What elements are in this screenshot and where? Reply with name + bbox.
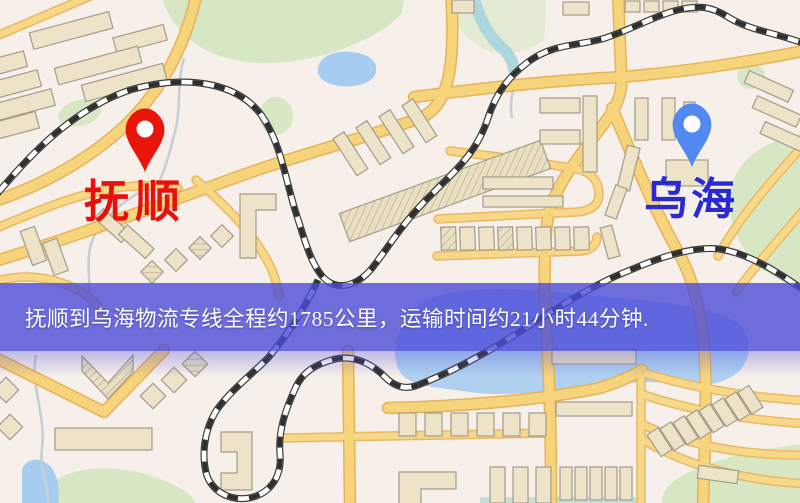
route-info-text: 抚顺到乌海物流专线全程约1785公里，运输时间约21小时44分钟.: [0, 302, 649, 333]
origin-pin[interactable]: [123, 108, 167, 174]
destination-city-label: 乌海: [644, 178, 738, 222]
destination-pin[interactable]: [670, 103, 714, 169]
destination-pin-icon[interactable]: [673, 104, 712, 168]
map-canvas: [0, 0, 800, 503]
origin-pin-icon[interactable]: [126, 109, 165, 173]
destination-pin-hole: [684, 116, 701, 133]
banner-fade: [0, 351, 800, 377]
map-container[interactable]: 抚顺到乌海物流专线全程约1785公里，运输时间约21小时44分钟. 抚顺 乌海: [0, 0, 800, 503]
origin-city-label: 抚顺: [84, 180, 186, 225]
origin-pin-hole: [137, 121, 154, 138]
route-info-banner: 抚顺到乌海物流专线全程约1785公里，运输时间约21小时44分钟.: [0, 283, 800, 351]
